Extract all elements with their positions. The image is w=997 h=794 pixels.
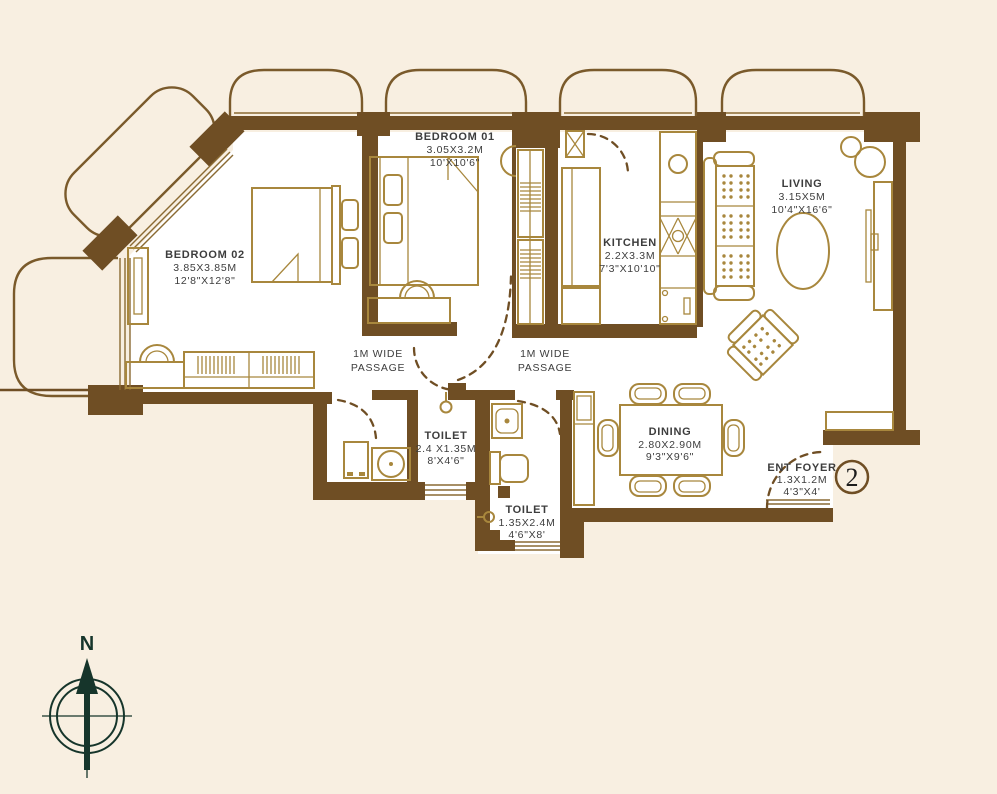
left-bay-window [14,258,118,396]
north-arrow-icon [76,658,98,694]
kitchen-imperial: 7'3"X10'10" [599,263,660,275]
svg-text:1M WIDE: 1M WIDE [353,348,403,360]
svg-text:PASSAGE: PASSAGE [351,362,405,374]
dining-imperial: 9'3"X9'6" [646,451,694,463]
north-compass: N [42,633,132,778]
unit-number-badge: 2 [836,461,868,493]
kitchen-metric: 2.2X3.3M [605,250,656,262]
vent-block [498,486,510,498]
toilet2-imperial: 4'6"X8' [508,529,545,541]
bedroom01-name: BEDROOM 01 [415,131,495,143]
kitchen-label: KITCHEN 2.2X3.3M 7'3"X10'10" [599,237,660,275]
living-imperial: 10'4"X16'6" [771,204,832,216]
toilet2-name: TOILET [505,504,548,516]
bedroom02-name: BEDROOM 02 [165,249,245,261]
toilet1-metric: 2.4 X1.35M [416,443,477,455]
dining-metric: 2.80X2.90M [638,439,702,451]
ent-foyer-imperial: 4'3"X4' [783,486,820,498]
bedroom01-metric: 3.05X3.2M [426,144,483,156]
kitchen-name: KITCHEN [603,237,657,249]
vent-block [486,530,500,544]
floor-plan-drawing: BEDROOM 01 3.05X3.2M 10'X10'6" BEDROOM 0… [0,0,997,789]
svg-text:PASSAGE: PASSAGE [518,362,572,374]
floor-plan-page: BEDROOM 01 3.05X3.2M 10'X10'6" BEDROOM 0… [0,0,997,789]
toilet1-imperial: 8'X4'6" [427,455,464,467]
living-metric: 3.15X5M [779,191,826,203]
toilet2-metric: 1.35X2.4M [498,517,555,529]
living-name: LIVING [782,178,823,190]
bedroom02-metric: 3.85X3.85M [173,262,237,274]
bedroom01-imperial: 10'X10'6" [430,157,480,169]
ent-foyer-name: ENT FOYER [767,462,836,474]
unit-number: 2 [846,463,859,492]
bedroom02-label: BEDROOM 02 3.85X3.85M 12'8"X12'8" [165,249,245,287]
north-label: N [80,633,94,655]
svg-text:1M WIDE: 1M WIDE [520,348,570,360]
dining-name: DINING [649,426,692,438]
bedroom02-imperial: 12'8"X12'8" [174,275,235,287]
toilet1-name: TOILET [424,430,467,442]
compass-needle-shaft [84,692,90,770]
ent-foyer-metric: 1.3X1.2M [777,474,828,486]
